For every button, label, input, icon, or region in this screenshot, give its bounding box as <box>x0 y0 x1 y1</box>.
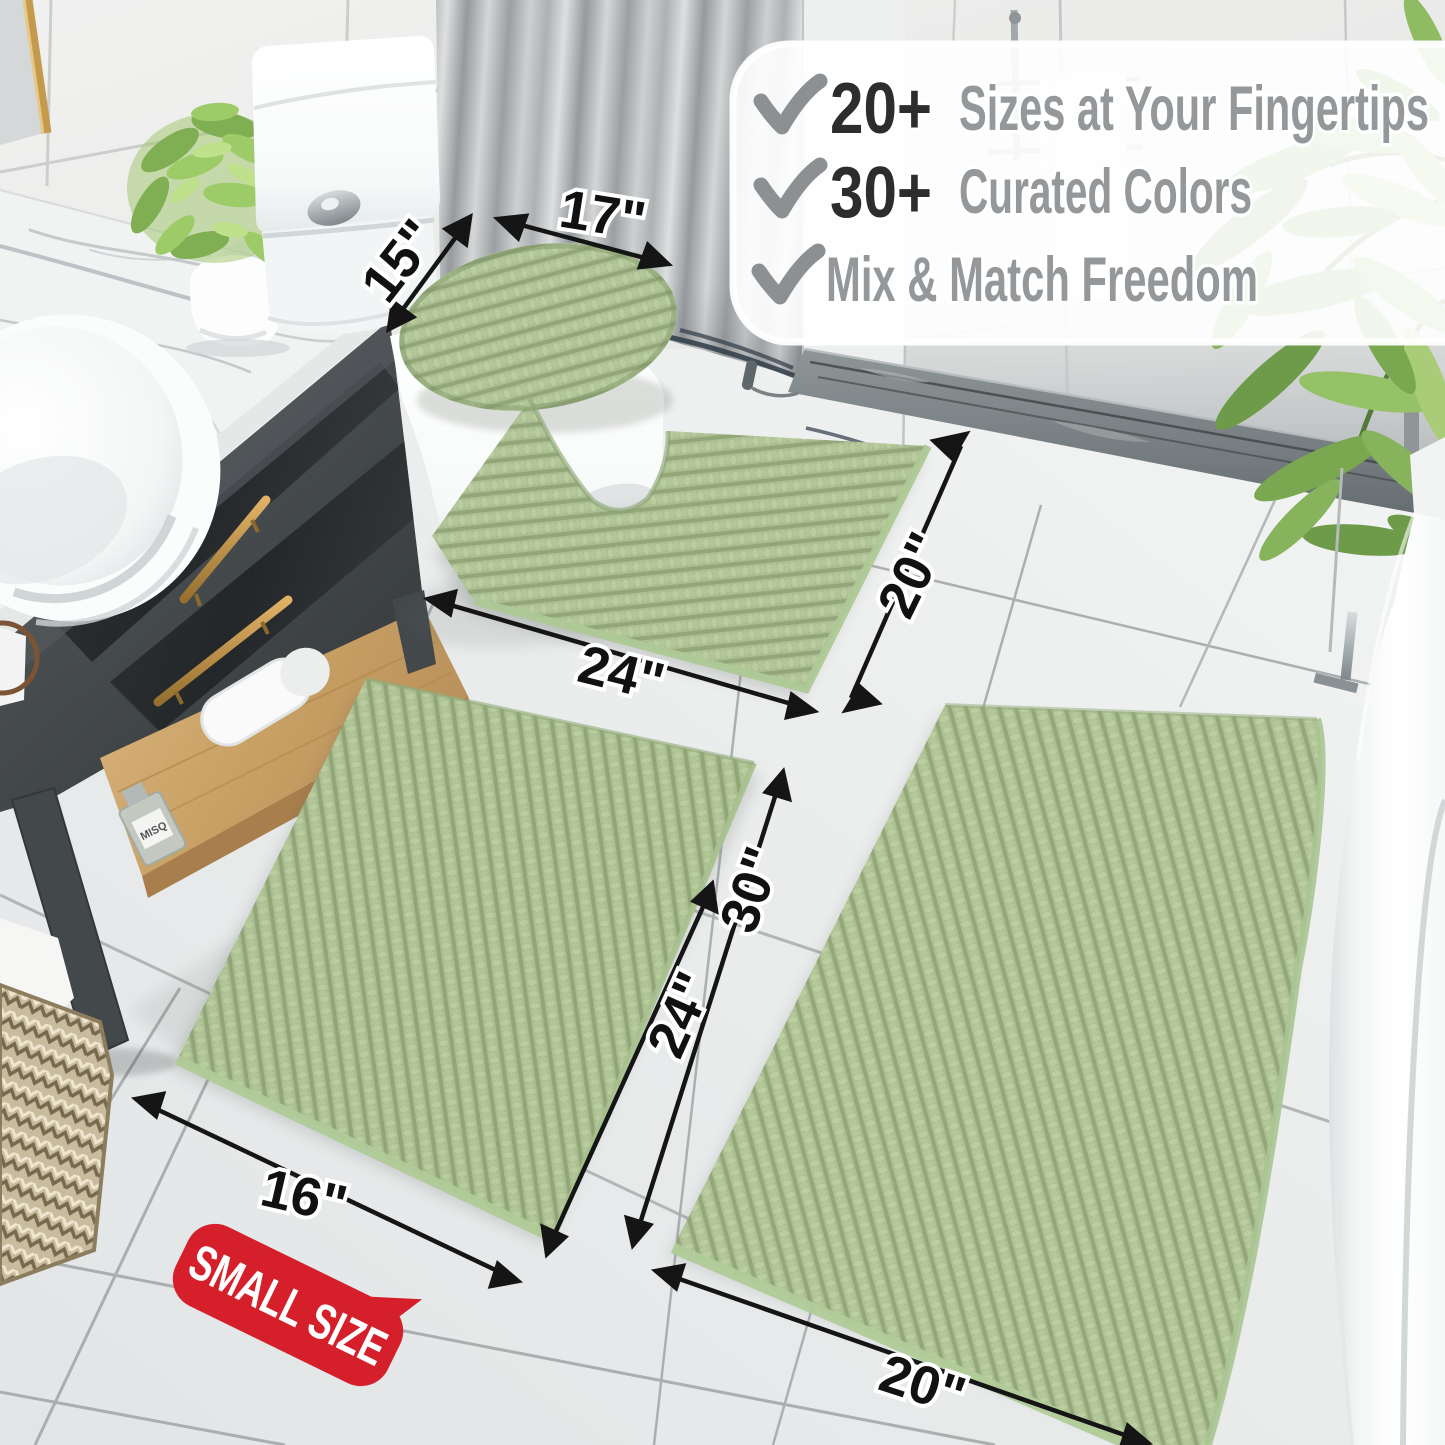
svg-text:30+: 30+ <box>830 153 932 233</box>
svg-text:20+: 20+ <box>830 69 932 149</box>
svg-text:Sizes at Your Fingertips: Sizes at Your Fingertips <box>959 74 1429 144</box>
svg-text:Curated Colors: Curated Colors <box>959 157 1252 227</box>
svg-text:Mix & Match Freedom: Mix & Match Freedom <box>826 245 1258 315</box>
